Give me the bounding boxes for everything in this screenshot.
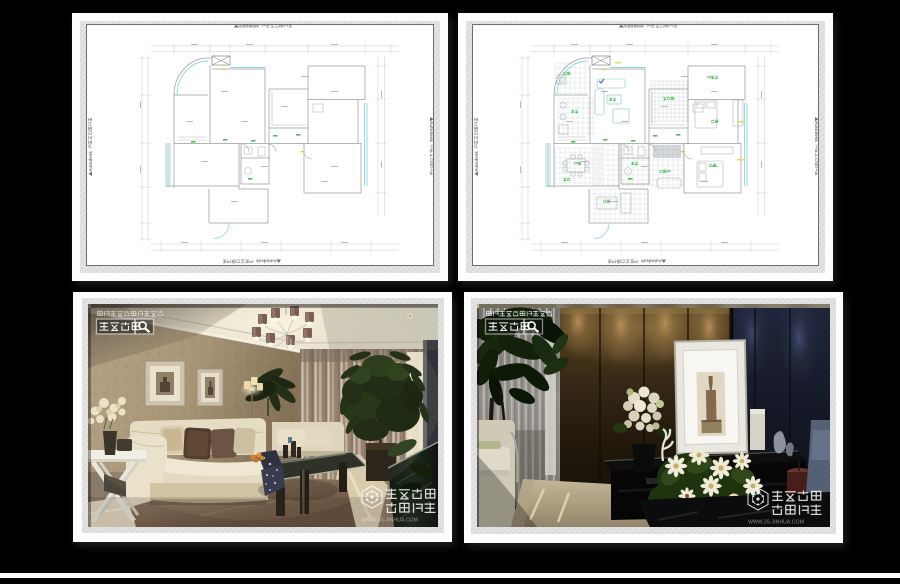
svg-text:Autodesk: Autodesk (238, 25, 259, 29)
svg-text:Autodesk: Autodesk (474, 151, 479, 172)
svg-text:Autodesk: Autodesk (256, 259, 277, 264)
svg-text:Autodesk: Autodesk (429, 121, 434, 142)
svg-text:Autodesk: Autodesk (623, 25, 644, 29)
svg-text:WWW.JS-JINHUA.COM: WWW.JS-JINHUA.COM (748, 520, 804, 526)
svg-text:Autodesk: Autodesk (641, 259, 662, 264)
svg-text:Autodesk: Autodesk (814, 121, 819, 142)
svg-text:Autodesk: Autodesk (88, 151, 93, 172)
svg-text:WWW.JS-JINHUA.COM: WWW.JS-JINHUA.COM (362, 518, 418, 524)
